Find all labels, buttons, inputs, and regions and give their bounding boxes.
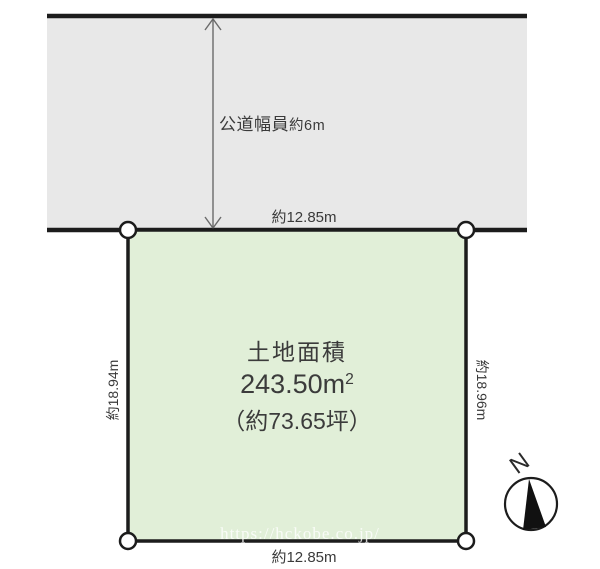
area-tsubo: （約73.65坪）: [128, 405, 466, 437]
compass-icon: [505, 478, 557, 530]
road-width-label: 公道幅員約6m: [219, 110, 325, 135]
road-width-label-text: 公道幅員: [219, 115, 289, 134]
top-dimension-label: 約12.85m: [238, 206, 370, 227]
area-title: 土地面積: [128, 336, 466, 368]
road-width-value: 約6m: [289, 118, 325, 134]
corner-marker-top-right: [458, 222, 474, 238]
square-meter-sup: 2: [345, 371, 354, 388]
bottom-dimension-label: 約12.85m: [238, 546, 370, 567]
area-value: 243.50m2: [128, 368, 466, 405]
left-dimension-label: 約18.94m: [103, 360, 123, 421]
land-plot-diagram: 公道幅員約6m 約12.85m 土地面積 243.50m2 （約73.65坪） …: [0, 0, 600, 569]
area-text-block: 土地面積 243.50m2 （約73.65坪）: [128, 336, 466, 437]
right-dimension-label: 約18.96m: [472, 360, 492, 421]
corner-marker-bottom-left: [120, 533, 136, 549]
watermark-text: https://hckobe.co.jp/: [150, 524, 450, 544]
corner-marker-top-left: [120, 222, 136, 238]
corner-marker-bottom-right: [458, 533, 474, 549]
diagram-shapes: [0, 0, 600, 569]
